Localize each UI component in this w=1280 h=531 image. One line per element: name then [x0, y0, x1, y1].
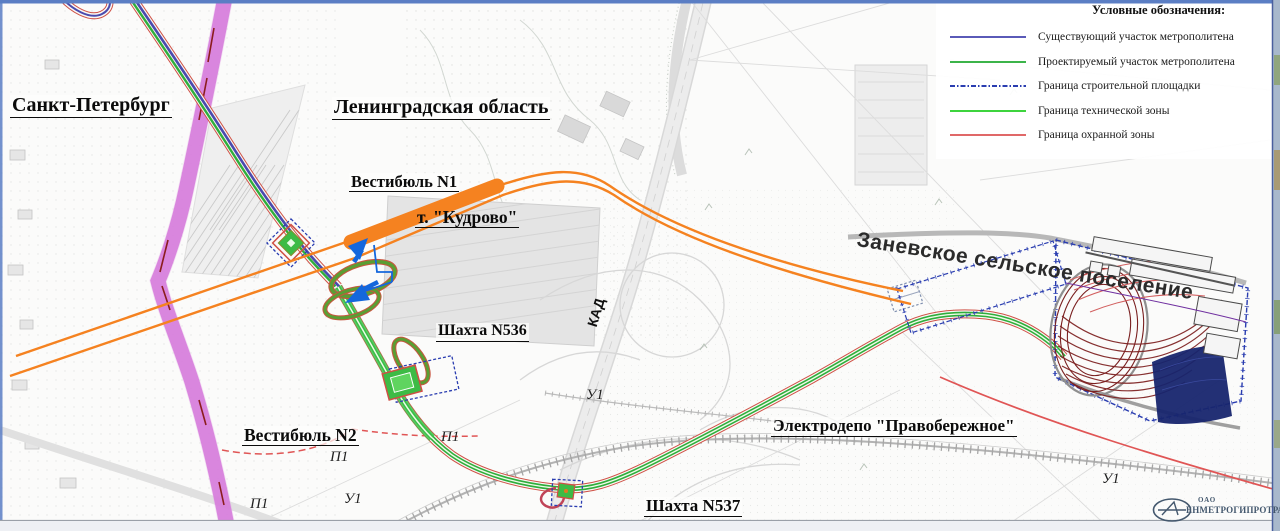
object-label-shaft-536: Шахта N536 — [436, 323, 529, 342]
object-label-shaft-537: Шахта N537 — [644, 497, 742, 517]
object-label-vestibule-n2: Вестибюль N2 — [242, 426, 359, 446]
road-label-p1: П1 — [330, 449, 348, 466]
logo-org-type: ОАО — [1198, 496, 1216, 504]
object-label-vestibule-n1: Вестибюль N1 — [349, 173, 459, 192]
road-label-u1: У1 — [586, 387, 604, 404]
object-label-station-kudrovo: т. "Кудрово" — [415, 208, 519, 228]
vestibule2-structure — [382, 356, 459, 403]
lenmetrogiprotrans-logo: ОАО ЕНМЕТРОГИПРОТРАНС — [1152, 494, 1278, 526]
object-label-depot: Электродепо "Правобережное" — [771, 417, 1017, 437]
road-label-p1: П1 — [250, 496, 268, 513]
metro-plan-map: Санкт-Петербург Ленинградская область Ве… — [0, 0, 1280, 531]
region-label-len-oblast: Ленинградская область — [332, 97, 550, 120]
legend-backdrop — [936, 1, 1272, 159]
road-label-u1: У1 — [1102, 471, 1120, 488]
region-label-spb: Санкт-Петербург — [10, 95, 172, 118]
depot-building-block — [1152, 346, 1232, 424]
logo-company-name: ЕНМЕТРОГИПРОТРАНС — [1186, 505, 1280, 515]
road-label-p1: П1 — [441, 429, 459, 446]
road-label-u1: У1 — [344, 491, 362, 508]
